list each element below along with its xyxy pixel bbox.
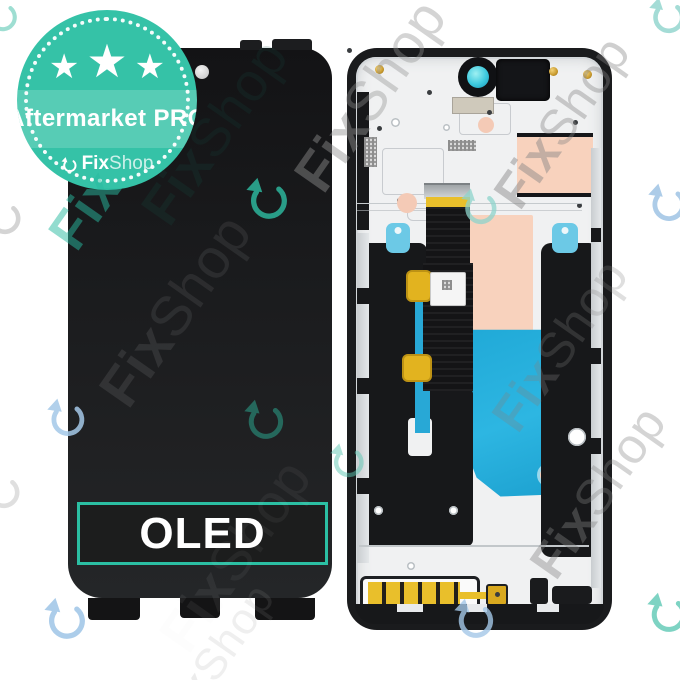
screw (573, 120, 578, 125)
badge-title-band: Aftermarket PRO (17, 90, 197, 148)
adhesive-dot (397, 193, 417, 213)
pad-hole (374, 506, 383, 515)
plate-hole (407, 562, 415, 570)
pull-tab-blue (552, 223, 578, 253)
bottom-flex-tab (88, 598, 140, 620)
recycle-arrow-icon (0, 196, 24, 236)
recycle-arrow-icon (61, 156, 78, 173)
antenna-flex-gold (368, 582, 460, 604)
plate-hole (391, 118, 400, 127)
bottom-flex-tab (180, 598, 220, 618)
antenna-break (591, 438, 601, 454)
fixshop-logo: FixShop (17, 153, 197, 175)
adhesive-pad-large (517, 133, 593, 197)
gold-contact (406, 270, 432, 302)
screw (375, 65, 384, 74)
recycle-arrow-icon (646, 590, 680, 634)
main-flex-ribbon (426, 207, 470, 265)
top-edge-tab (240, 40, 262, 50)
recycle-arrow-icon (43, 595, 89, 641)
screw (427, 90, 432, 95)
front-camera-punch-hole (195, 65, 209, 79)
bottom-component (552, 586, 592, 604)
aftermarket-pro-badge: ★ ★ ★ Aftermarket PRO FixShop (17, 10, 197, 190)
antenna-trace (458, 592, 488, 599)
display-frame-back (347, 48, 612, 630)
top-edge-tab (272, 39, 312, 50)
gold-contact (402, 354, 432, 382)
side-rail (357, 233, 369, 563)
frame-cutout (397, 604, 423, 612)
antenna-break (357, 478, 369, 494)
star-icon: ★ (49, 50, 79, 84)
screw (487, 110, 492, 115)
antenna-break (591, 348, 601, 364)
connector-pin (495, 592, 500, 597)
oled-label: OLED (139, 509, 265, 559)
pad-hole (449, 506, 458, 515)
side-rail (591, 148, 601, 588)
adhesive-dot (478, 117, 494, 133)
pad-hole (568, 428, 586, 446)
recycle-arrow-icon (647, 181, 680, 223)
badge-stars: ★ ★ ★ (17, 38, 197, 84)
flex-gold-band (426, 197, 470, 207)
antenna-break (357, 288, 369, 304)
antenna-break (591, 228, 601, 242)
plate-hole (443, 124, 450, 131)
earpiece-speaker-block (496, 59, 550, 101)
oled-label-box: OLED (77, 502, 328, 565)
frame-cutout (537, 604, 559, 612)
recycle-arrow-icon (0, 470, 23, 510)
badge-title: Aftermarket PRO (17, 105, 197, 133)
bottom-component (530, 578, 548, 604)
bottom-flex-tab (255, 598, 315, 620)
qr-sticker (448, 140, 476, 151)
sticker-code (442, 280, 452, 290)
pull-tab-blue (386, 223, 410, 253)
product-image: OLED (0, 0, 680, 680)
screw (583, 70, 592, 79)
screw (347, 48, 352, 53)
star-icon: ★ (86, 38, 127, 84)
screw (377, 126, 382, 131)
antenna-break (357, 378, 369, 394)
plate-seam (359, 545, 589, 547)
recycle-arrow-icon (648, 0, 680, 35)
screw (549, 67, 558, 76)
star-icon: ★ (135, 50, 165, 84)
frame-cutout (467, 604, 487, 612)
qr-sticker (364, 137, 377, 167)
recycle-arrow-icon (0, 0, 20, 33)
camera-lens (467, 66, 489, 88)
logo-text: FixShop (82, 153, 154, 175)
